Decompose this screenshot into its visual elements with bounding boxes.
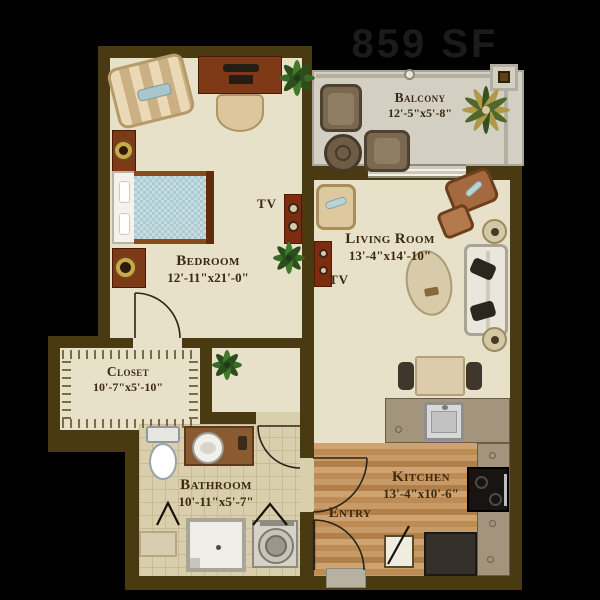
bedroom-label: Bedroom 12'-11"x21'-0" xyxy=(167,252,249,286)
bedroom-desk xyxy=(198,56,282,94)
bed-headboard xyxy=(112,171,136,244)
plant-icon xyxy=(458,82,514,138)
entry-bathroom-doorway xyxy=(300,458,314,512)
pillow xyxy=(119,181,130,203)
closet-hangers xyxy=(62,359,71,419)
floorplan-canvas: 859 SF xyxy=(0,0,600,600)
counter-knob xyxy=(487,556,494,563)
pillow xyxy=(119,213,130,235)
tv-label-bedroom: TV xyxy=(257,196,277,212)
balcony-chair-cushion xyxy=(328,93,354,125)
side-table-item xyxy=(491,228,499,236)
room-name: Kitchen xyxy=(383,468,459,486)
bed xyxy=(112,171,214,244)
washer xyxy=(252,520,298,568)
dining-chair xyxy=(398,362,414,390)
shower xyxy=(186,518,246,572)
speaker xyxy=(319,249,328,258)
bedroom-closet-doorway xyxy=(133,336,182,350)
balcony-table-center xyxy=(335,145,351,161)
room-name: Entry xyxy=(329,504,372,522)
washer-drum xyxy=(265,535,287,557)
sofa-pillow xyxy=(469,300,496,322)
bathroom-bench xyxy=(139,531,177,557)
plant-icon xyxy=(208,346,246,384)
armchair-pillow xyxy=(324,196,347,210)
living-room-label: Living Room 13'-4"x14'-10" xyxy=(345,230,435,264)
closet-hangers xyxy=(189,359,198,419)
nightstand xyxy=(112,248,146,288)
closet-label: Closet 10'-7"x5'-10" xyxy=(93,364,163,395)
burner xyxy=(475,476,488,489)
counter-knob xyxy=(489,520,496,527)
side-table-item xyxy=(491,336,499,344)
side-table xyxy=(482,327,507,352)
toilet-tank xyxy=(146,426,180,443)
balcony-chair xyxy=(364,130,410,172)
area-label: 859 SF xyxy=(352,22,499,67)
kitchen-sink xyxy=(424,402,464,441)
front-door-threshold xyxy=(326,568,366,588)
dining-chair xyxy=(466,362,482,390)
bed-quilt xyxy=(134,171,206,244)
bed-footboard xyxy=(206,171,214,244)
stove-handle xyxy=(504,474,507,506)
balcony-chair xyxy=(320,84,362,132)
sofa xyxy=(464,244,508,336)
room-name: Bathroom xyxy=(178,476,253,494)
armchair-cushion xyxy=(136,82,172,102)
entry-label: Entry xyxy=(329,504,372,522)
desk-keyboard xyxy=(229,75,253,84)
room-dims: 10'-11"x5'-7" xyxy=(178,494,253,510)
desk-monitor xyxy=(223,64,259,72)
plant-icon xyxy=(269,238,309,278)
vanity-sink xyxy=(192,432,224,464)
balcony-chair-cushion xyxy=(374,138,400,164)
tv-label-living: TV xyxy=(329,272,349,288)
balcony-table xyxy=(324,134,362,172)
bathroom-vanity xyxy=(184,426,254,466)
room-name: Bedroom xyxy=(167,252,249,270)
tv-console-bedroom xyxy=(284,194,302,244)
room-name: Living Room xyxy=(345,230,435,248)
room-dims: 12'-11"x21'-0" xyxy=(167,270,249,286)
balcony-label: Balcony 12'-5"x5'-8" xyxy=(388,90,452,121)
speaker xyxy=(288,221,299,232)
desk-chair xyxy=(216,94,264,132)
toilet-bowl xyxy=(149,443,177,480)
sink-basin xyxy=(431,411,457,433)
sink-faucet xyxy=(442,405,448,410)
closet-hangers xyxy=(62,350,198,359)
recliner-pillow xyxy=(464,180,484,199)
entry-closet xyxy=(384,535,414,568)
room-dims: 13'-4"x10'-6" xyxy=(383,486,459,502)
stove xyxy=(467,467,509,512)
room-name: Balcony xyxy=(388,90,452,106)
nightstand xyxy=(112,130,136,172)
burner xyxy=(489,493,502,506)
washer-door xyxy=(258,528,294,564)
dining-table xyxy=(415,356,465,396)
room-dims: 10'-7"x5'-10" xyxy=(93,380,163,394)
counter-knob xyxy=(489,452,496,459)
kitchen-label: Kitchen 13'-4"x10'-6" xyxy=(383,468,459,502)
lamp xyxy=(116,258,135,277)
speaker xyxy=(319,266,328,275)
room-dims: 13'-4"x14'-10" xyxy=(345,248,435,264)
refrigerator xyxy=(424,532,477,576)
lamp xyxy=(115,142,132,159)
speaker xyxy=(288,203,299,214)
hall-bathroom-doorway xyxy=(256,412,300,426)
bathroom-label: Bathroom 10'-11"x5'-7" xyxy=(178,476,253,510)
vanity-accessory xyxy=(238,436,247,450)
shower-step xyxy=(190,558,200,568)
ottoman-tray xyxy=(424,287,439,297)
counter-knob xyxy=(395,426,402,433)
balcony-rail-finial xyxy=(404,69,415,80)
room-dims: 12'-5"x5'-8" xyxy=(388,106,452,120)
vanity-basin xyxy=(200,442,216,454)
sofa-pillow xyxy=(469,257,497,281)
plant-icon xyxy=(275,56,319,100)
shower-drain xyxy=(216,545,221,550)
living-armchair xyxy=(316,184,356,230)
side-table xyxy=(482,219,507,244)
room-name: Closet xyxy=(93,364,163,380)
washer-panel xyxy=(260,522,294,526)
